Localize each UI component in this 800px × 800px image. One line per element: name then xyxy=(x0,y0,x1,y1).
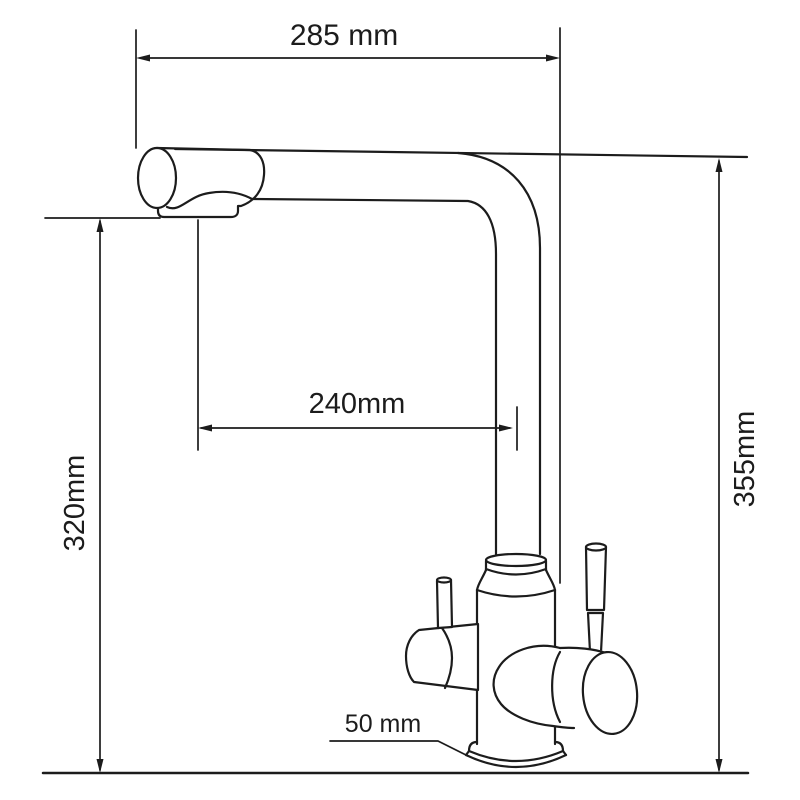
dimension-label-240mm: 240mm xyxy=(257,390,457,419)
dimension-label-320mm: 320mm xyxy=(61,423,93,583)
faucet-dimension-drawing: 285 mm 240mm 320mm 355mm 50 mm xyxy=(0,0,800,800)
arrowhead-320-bottom xyxy=(97,759,104,773)
pipe-outer-bend xyxy=(458,153,540,554)
left-handle xyxy=(406,578,478,691)
pipe-inner-bend xyxy=(252,199,496,554)
collar-flare-left xyxy=(477,570,486,590)
left-handle-lever xyxy=(437,580,452,628)
faucet-pipe xyxy=(175,149,747,554)
arrowhead-355-bottom xyxy=(716,759,723,773)
faucet-spout xyxy=(138,148,264,217)
spout-end-cap xyxy=(138,148,176,208)
dimension-label-355mm: 355mm xyxy=(731,379,763,539)
arrowhead-240-right xyxy=(499,425,513,432)
collar-flare-right xyxy=(546,570,555,590)
base-flange-arc xyxy=(469,751,563,761)
right-lever-cap xyxy=(586,544,606,551)
arrowhead-285-right xyxy=(546,55,560,62)
collar-top-ring xyxy=(486,554,546,566)
leader-line-50mm xyxy=(330,741,468,756)
left-handle-cone xyxy=(406,624,478,690)
arrowhead-240-left xyxy=(198,425,212,432)
arrowhead-285-left xyxy=(136,55,150,62)
dimension-label-50mm: 50 mm xyxy=(323,712,443,737)
collar-ring-arc xyxy=(486,569,546,575)
base-lip-right xyxy=(555,742,563,751)
dimension-355mm xyxy=(716,158,723,773)
left-lever-cap xyxy=(437,578,451,583)
right-lever-upper xyxy=(586,547,606,610)
base-lip-left xyxy=(469,742,477,751)
right-lever-lower xyxy=(588,613,603,652)
arrowhead-355-top xyxy=(716,158,723,172)
arrowhead-320-top xyxy=(97,218,104,232)
dimension-label-285mm: 285 mm xyxy=(244,21,444,51)
right-handle xyxy=(494,544,641,737)
body-shoulder-arc xyxy=(477,590,555,597)
